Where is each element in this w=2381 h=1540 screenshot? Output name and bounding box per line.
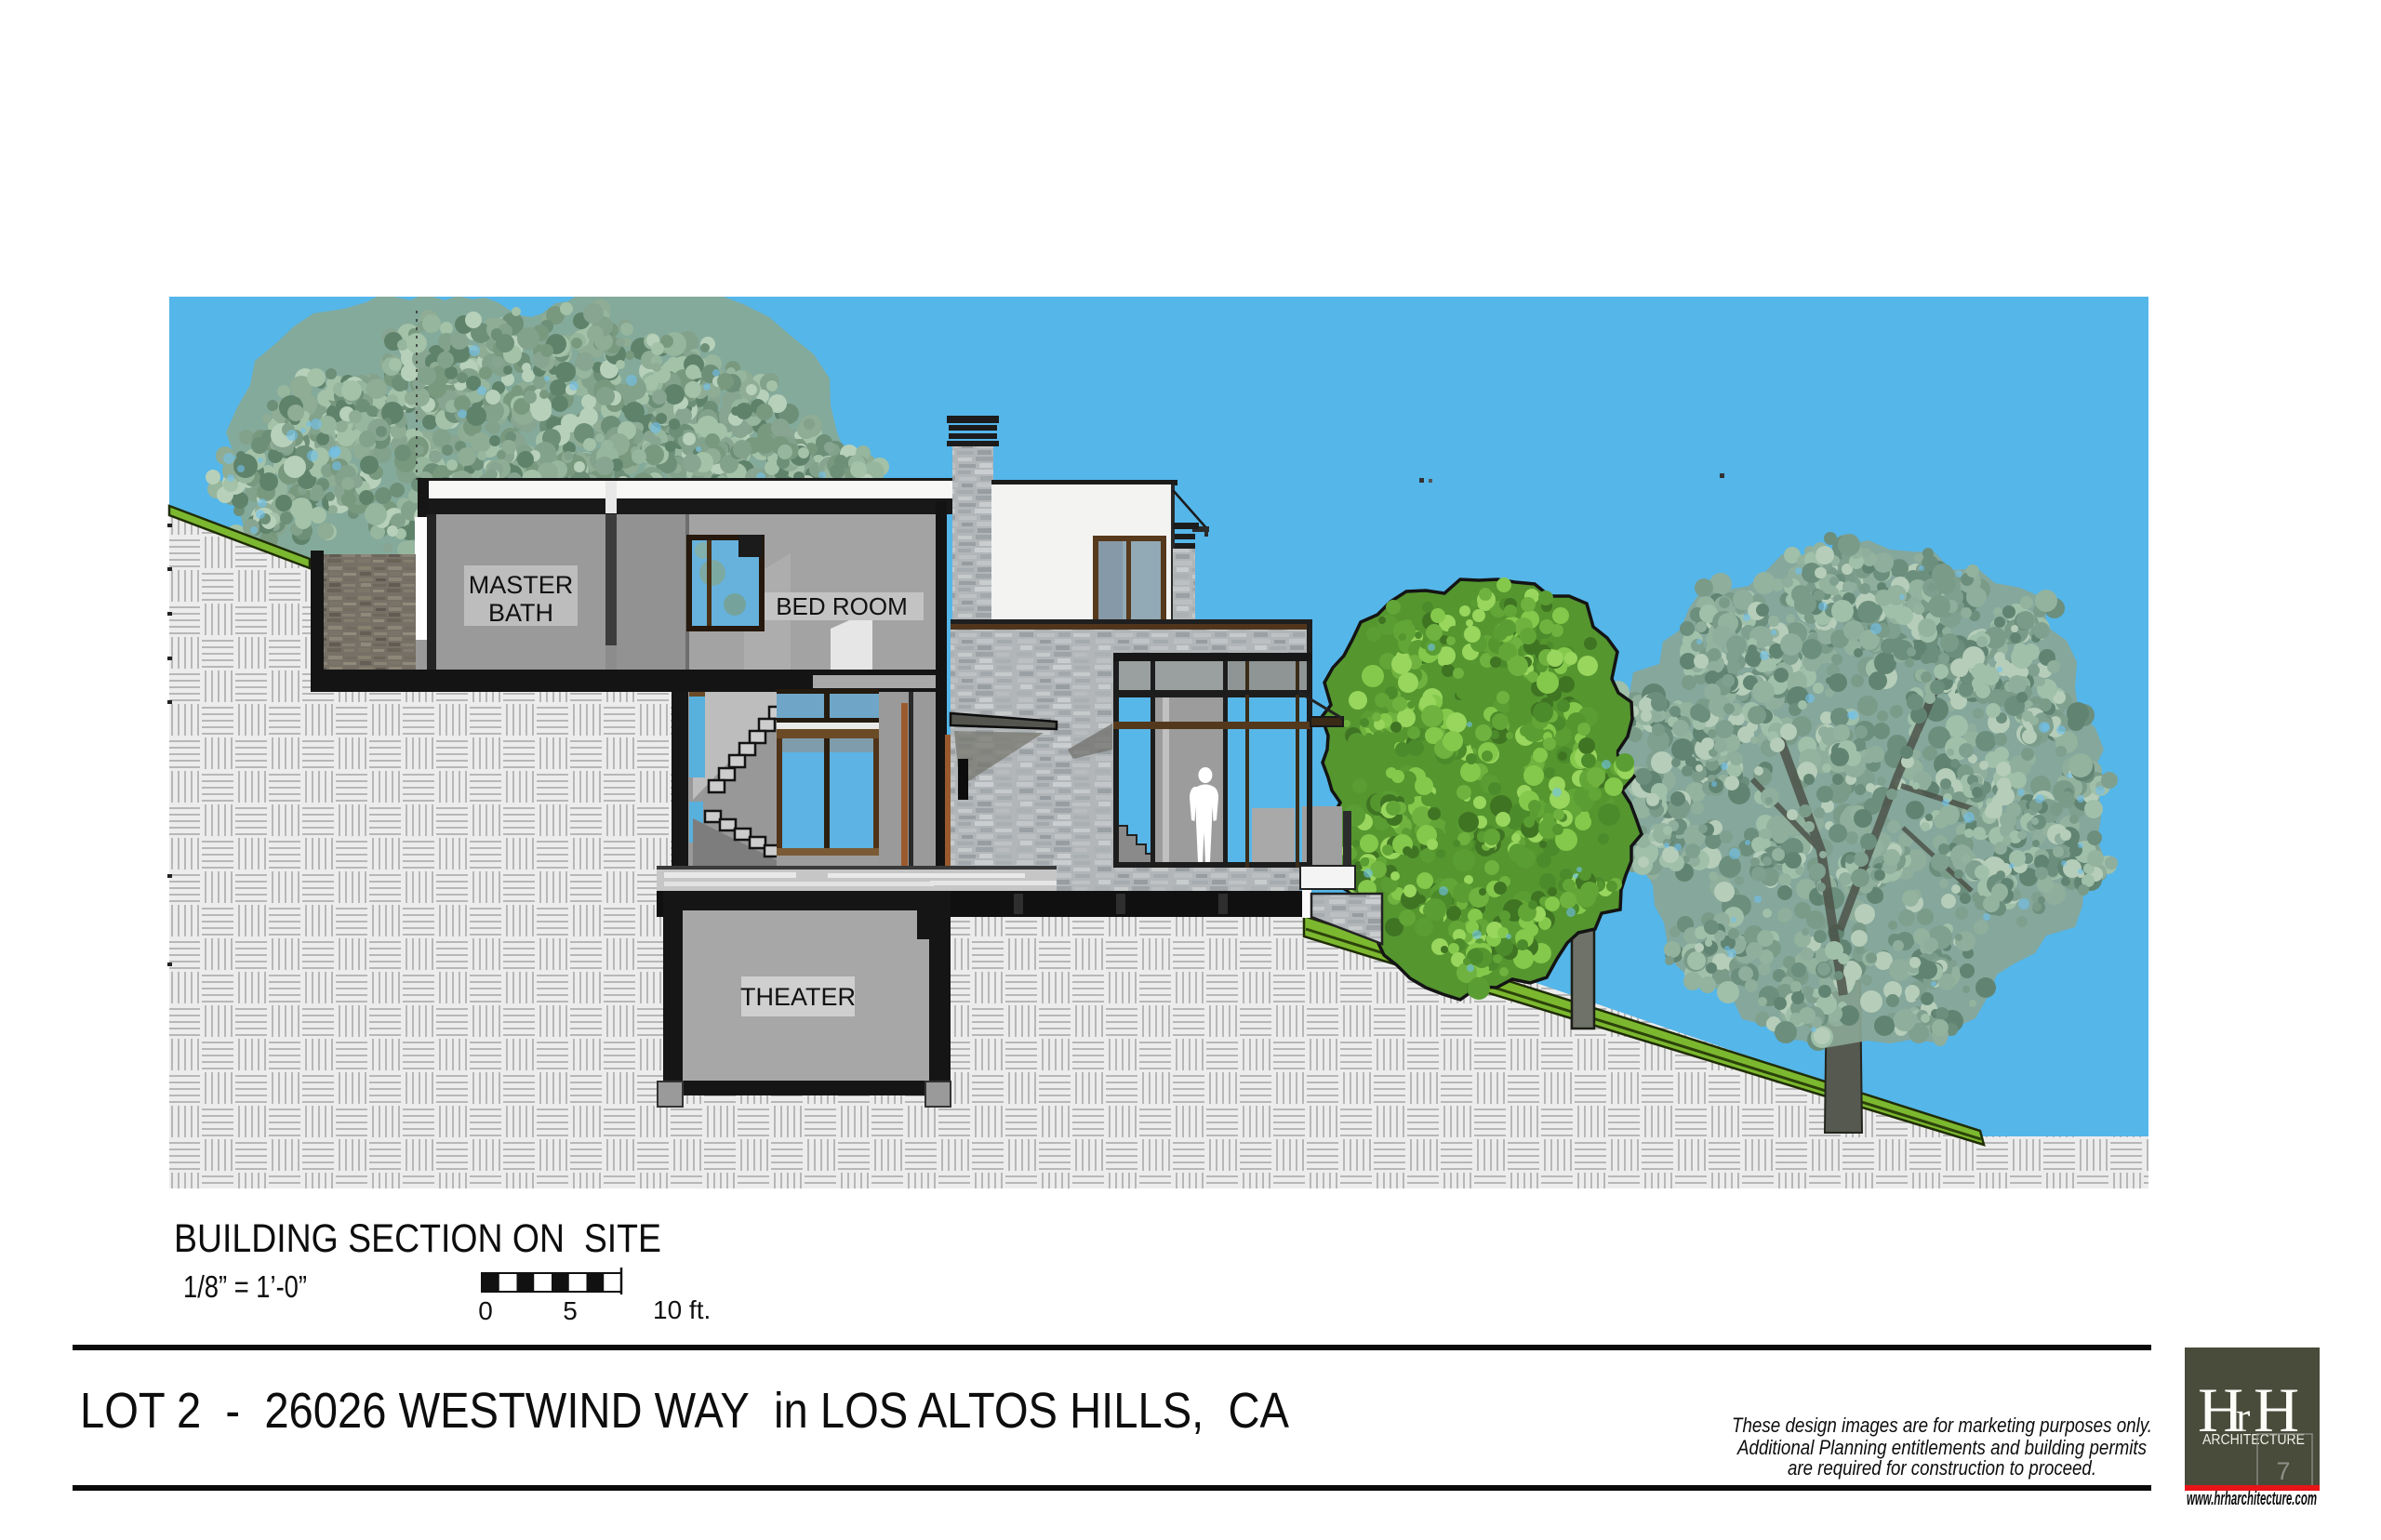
svg-text:These design images are for ma: These design images are for marketing pu… bbox=[1732, 1414, 2152, 1437]
svg-text:www.hrharchitecture.com: www.hrharchitecture.com bbox=[2187, 1488, 2317, 1509]
svg-text:7: 7 bbox=[2276, 1457, 2290, 1485]
svg-text:BED ROOM: BED ROOM bbox=[776, 592, 908, 620]
svg-text:BUILDING SECTION ON SITE: BUILDING SECTION ON SITE bbox=[174, 1216, 661, 1261]
svg-text:10 ft.: 10 ft. bbox=[653, 1295, 711, 1324]
svg-text:are required for construction: are required for construction to proceed… bbox=[1788, 1456, 2096, 1480]
svg-text:THEATER: THEATER bbox=[740, 983, 856, 1011]
svg-text:MASTER: MASTER bbox=[469, 571, 574, 599]
svg-text:0: 0 bbox=[478, 1296, 493, 1325]
svg-text:LOT 2 - 26026 WESTWIND WAY: LOT 2 - 26026 WESTWIND WAY in LOS ALTOS … bbox=[80, 1383, 1289, 1439]
svg-text:5: 5 bbox=[563, 1296, 578, 1325]
svg-text:BATH: BATH bbox=[488, 599, 553, 627]
svg-text:1/8” = 1’-0”: 1/8” = 1’-0” bbox=[183, 1269, 307, 1304]
